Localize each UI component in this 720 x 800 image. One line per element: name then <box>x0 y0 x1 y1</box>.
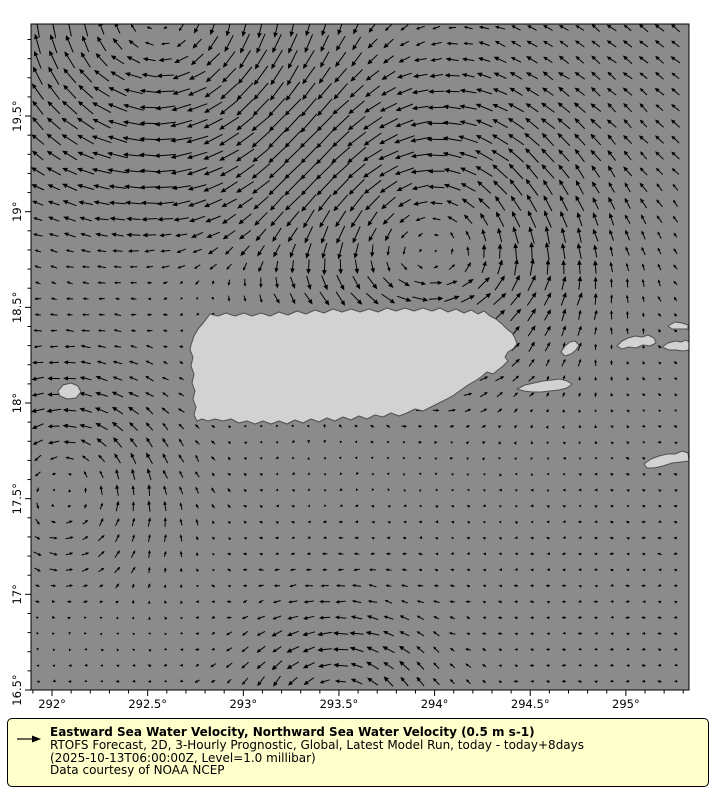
legend-box: Eastward Sea Water Velocity, Northward S… <box>7 718 709 787</box>
x-tick-label: 294° <box>421 697 449 711</box>
y-tick-label: 17.5° <box>10 483 24 514</box>
y-tick-label: 18° <box>10 393 24 413</box>
legend-text-block: Eastward Sea Water Velocity, Northward S… <box>50 726 698 777</box>
y-tick-label: 19.5° <box>10 100 24 131</box>
x-tick-label: 292.5° <box>128 697 167 711</box>
velocity-vector-plot: 292°292.5°293°293.5°294°294.5°295°16.5°1… <box>0 0 720 800</box>
x-tick-label: 293.5° <box>320 697 359 711</box>
rtofs-velocity-figure: 292°292.5°293°293.5°294°294.5°295°16.5°1… <box>0 0 720 800</box>
y-tick-label: 17° <box>10 584 24 604</box>
y-tick-label: 19° <box>10 201 24 221</box>
x-tick-label: 295° <box>612 697 640 711</box>
x-tick-label: 292° <box>38 697 66 711</box>
legend-credit: Data courtesy of NOAA NCEP <box>50 764 698 777</box>
x-tick-label: 294.5° <box>511 697 550 711</box>
y-tick-label: 18.5° <box>10 292 24 323</box>
reference-arrow-icon <box>16 729 42 748</box>
x-tick-label: 293° <box>229 697 257 711</box>
y-tick-label: 16.5° <box>10 674 24 705</box>
legend-subtitle: RTOFS Forecast, 2D, 3-Hourly Prognostic,… <box>50 739 698 752</box>
